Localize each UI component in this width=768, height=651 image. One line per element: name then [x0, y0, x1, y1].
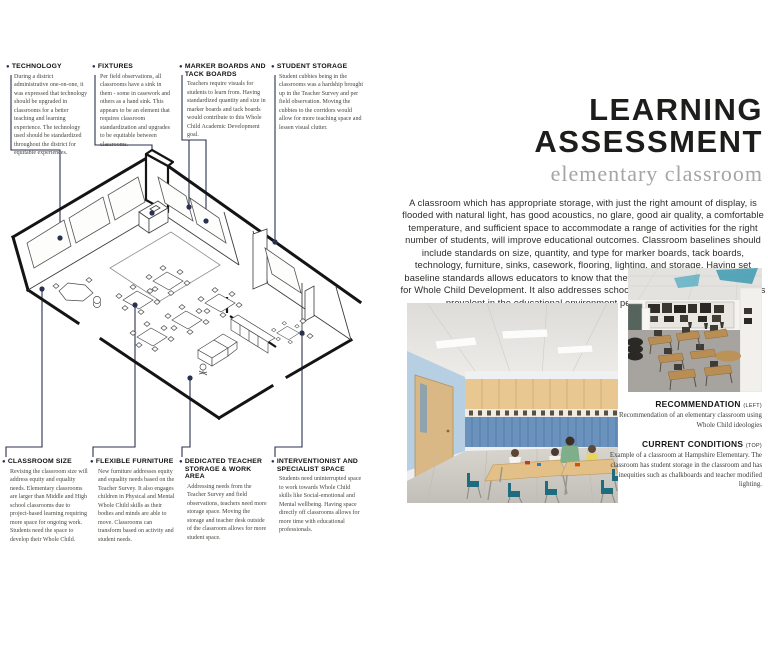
- bullet-icon: ●: [179, 459, 183, 465]
- callout-classroom-size: ●CLASSROOM SIZE Revising the classroom s…: [2, 458, 88, 544]
- callout-title: ●INTERVENTIONIST AND SPECIALIST SPACE: [271, 458, 363, 473]
- callout-title: ●STUDENT STORAGE: [271, 63, 363, 71]
- bullet-icon: ●: [90, 459, 94, 465]
- chalkboard: [628, 304, 642, 332]
- callout-body: Student cubbies being in the classrooms …: [271, 73, 363, 133]
- bullet-icon: ●: [271, 64, 275, 70]
- upper-cabinets: [465, 379, 618, 409]
- plan-rug: [110, 232, 220, 301]
- page-subtitle: elementary classroom: [534, 161, 763, 187]
- recommendation-caption-title: RECOMMENDATION (LEFT): [604, 399, 762, 409]
- recommendation-caption-body: Recommendation of an elementary classroo…: [604, 411, 762, 430]
- tire-stack: [628, 338, 643, 361]
- callout-title: ●FIXTURES: [92, 63, 174, 71]
- poster-page: ●TECHNOLOGY During a district administra…: [0, 0, 768, 651]
- plan-sink-casework: [139, 201, 168, 233]
- callout-interventionist-space: ●INTERVENTIONIST AND SPECIALIST SPACE St…: [271, 458, 363, 535]
- title-line-2: ASSESSMENT: [534, 126, 763, 158]
- callout-body: Per field observations, all classrooms h…: [92, 73, 174, 150]
- current-conditions-caption-title: CURRENT CONDITIONS (TOP): [604, 439, 762, 449]
- callout-title: ●FLEXIBLE FURNITURE: [90, 458, 176, 466]
- callout-fixtures: ●FIXTURES Per field observations, all cl…: [92, 63, 174, 149]
- bullet-icon: ●: [92, 64, 96, 70]
- page-title: LEARNING ASSESSMENT elementary classroom: [534, 94, 763, 187]
- photo-captions: RECOMMENDATION (LEFT) Recommendation of …: [604, 399, 762, 490]
- bullet-icon: ●: [2, 459, 6, 465]
- callout-marker-boards: ●MARKER BOARDS AND TACK BOARDS Teachers …: [179, 63, 267, 140]
- callout-body: Teachers require visuals for students to…: [179, 80, 267, 140]
- callout-teacher-storage: ●DEDICATED TEACHER STORAGE & WORK AREA A…: [179, 458, 267, 542]
- callout-body: New furniture addresses equity and equal…: [90, 468, 176, 545]
- callout-title: ●MARKER BOARDS AND TACK BOARDS: [179, 63, 267, 78]
- round-table: [715, 351, 741, 362]
- callout-technology: ●TECHNOLOGY During a district administra…: [6, 63, 88, 158]
- bullet-icon: ●: [271, 459, 275, 465]
- caption-tag: (LEFT): [743, 403, 762, 409]
- callout-body: Addressing needs from the Teacher Survey…: [179, 483, 267, 543]
- photo-recommendation: [407, 303, 618, 503]
- photo-current-conditions: [628, 268, 762, 392]
- callout-flexible-furniture: ●FLEXIBLE FURNITURE New furniture addres…: [90, 458, 176, 544]
- bullet-icon: ●: [179, 64, 183, 70]
- callout-student-storage: ●STUDENT STORAGE Student cubbies being i…: [271, 63, 363, 132]
- callout-title: ●CLASSROOM SIZE: [2, 458, 88, 466]
- callout-body: Revising the classroom size will address…: [2, 468, 88, 545]
- door-handle: [447, 430, 450, 433]
- title-line-1: LEARNING: [534, 94, 763, 126]
- bullet-icon: ●: [6, 64, 10, 70]
- door-window: [420, 383, 427, 433]
- current-conditions-caption-body: Example of a classroom at Hampshire Elem…: [604, 451, 762, 490]
- callout-body: Students need uninterrupted space to wor…: [271, 475, 363, 535]
- callout-title: ●DEDICATED TEACHER STORAGE & WORK AREA: [179, 458, 267, 481]
- caption-tag: (TOP): [746, 443, 762, 449]
- callout-title: ●TECHNOLOGY: [6, 63, 88, 71]
- plan-furniture: [53, 266, 313, 375]
- column: [740, 288, 762, 392]
- callout-body: During a district administrative one-on-…: [6, 73, 88, 158]
